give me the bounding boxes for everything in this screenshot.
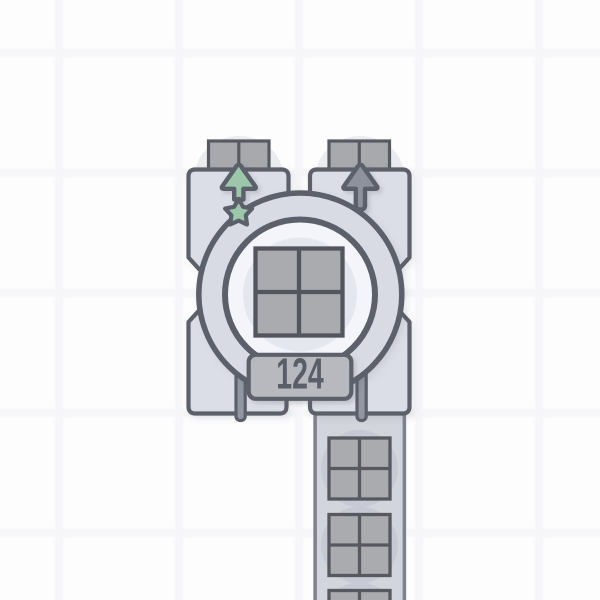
svg-text:124: 124	[276, 351, 324, 399]
